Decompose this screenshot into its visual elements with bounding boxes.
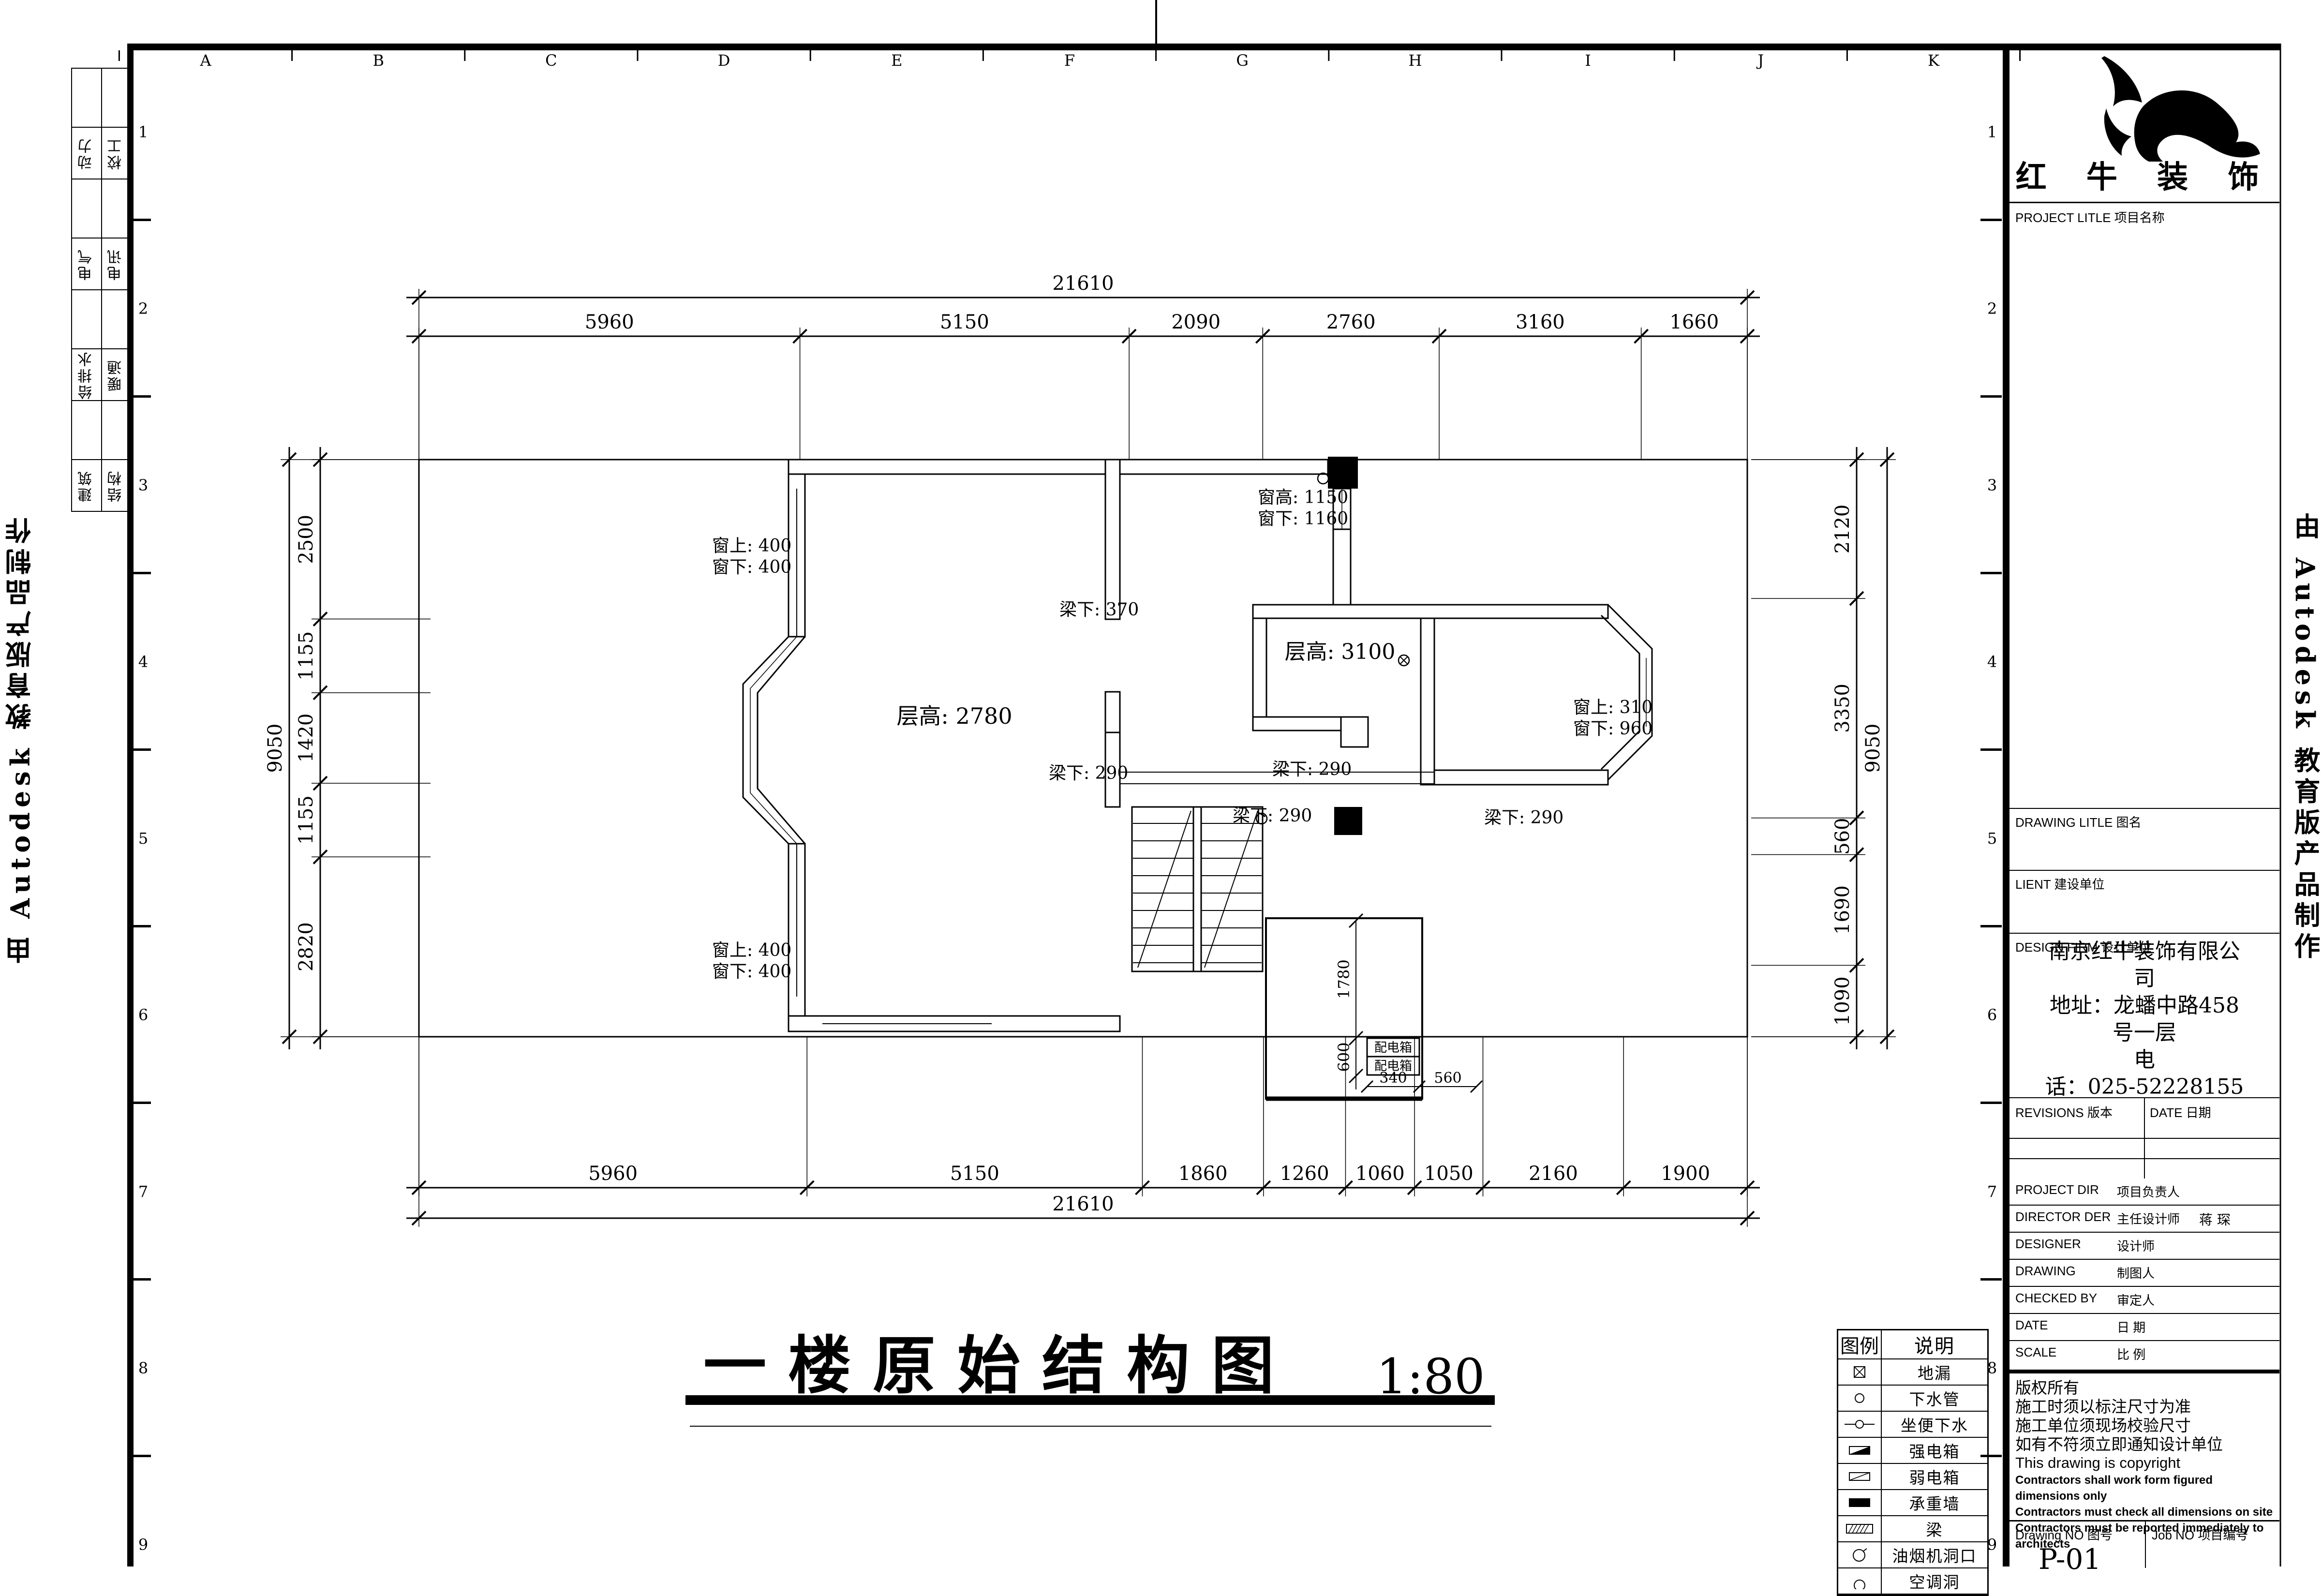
dim-label: 21610 bbox=[1052, 272, 1114, 295]
dim-label: 560 bbox=[1434, 1070, 1461, 1087]
dim-label: 5960 bbox=[585, 311, 634, 333]
legend-label: 坐便下水 bbox=[1882, 1412, 1987, 1437]
drain-pipe-icon bbox=[1843, 1390, 1876, 1406]
grid-number: 2 bbox=[138, 299, 148, 318]
row-value: 蒋 琛 bbox=[2199, 1209, 2231, 1229]
strong-power-box-icon bbox=[1843, 1442, 1876, 1459]
stairs bbox=[1132, 807, 1263, 971]
legend-label: 地漏 bbox=[1882, 1359, 1987, 1385]
plan-label: 梁下: 290 bbox=[1272, 760, 1352, 779]
grid-letter: J bbox=[1756, 51, 1764, 70]
titleblock-border bbox=[2003, 44, 2009, 1566]
toilet-drain-icon bbox=[1843, 1416, 1876, 1432]
dim-label: 3160 bbox=[1516, 311, 1565, 333]
dim-label: 5150 bbox=[950, 1163, 999, 1185]
autodesk-edu-watermark-right: 由 Autodesk 教育版产品制作 bbox=[2286, 513, 2322, 964]
margin-discipline-table: 动力校工 电气电讯 给排水暖通 建筑结构 bbox=[71, 68, 131, 512]
autodesk-edu-watermark-left: 由 Autodesk 教育版产品制作 bbox=[1, 513, 39, 964]
revisions-label: REVISIONS 版本 bbox=[2009, 1099, 2144, 1121]
grid-letter: F bbox=[1064, 51, 1075, 70]
dim-label: 1860 bbox=[1178, 1163, 1228, 1185]
firm-line: 话：025-52228155 bbox=[2009, 1074, 2279, 1101]
wall-stub bbox=[1341, 717, 1368, 747]
dim-label: 9050 bbox=[1862, 724, 1884, 773]
firm-line: 司 bbox=[2009, 965, 2279, 992]
plan-label: 梁下: 290 bbox=[1484, 808, 1563, 828]
drawing-no: P-01 bbox=[2039, 1543, 2101, 1576]
plan-label: 配电箱 bbox=[1374, 1041, 1412, 1055]
dim-label: 340 bbox=[1379, 1070, 1407, 1087]
drawing-title-label: DRAWING LITLE 图名 bbox=[2009, 809, 2142, 831]
legend-header-symbol: 图例 bbox=[1838, 1330, 1882, 1358]
dim-label: 1060 bbox=[1355, 1163, 1405, 1185]
legend-label: 弱电箱 bbox=[1882, 1464, 1987, 1489]
hood-opening-icon bbox=[1843, 1547, 1876, 1563]
grid-number: 9 bbox=[138, 1536, 148, 1554]
wall bbox=[1333, 529, 1351, 606]
row-label-en: PROJECT DIR bbox=[2009, 1182, 2117, 1197]
dim-label: 1420 bbox=[295, 714, 317, 763]
legend-label: 梁 bbox=[1882, 1516, 1987, 1541]
floor-drain-icon bbox=[1843, 1364, 1876, 1380]
red-bull-logo bbox=[2009, 50, 2279, 162]
revisions-date-label: DATE 日期 bbox=[2144, 1099, 2211, 1121]
grid-number: 7 bbox=[1987, 1182, 1997, 1201]
row-label-en: DATE bbox=[2009, 1318, 2117, 1333]
legend-label: 下水管 bbox=[1882, 1386, 1987, 1411]
legend-header-desc: 说明 bbox=[1882, 1330, 1987, 1358]
wall bbox=[1434, 770, 1608, 785]
row-label-cn: 审定人 bbox=[2117, 1291, 2199, 1309]
grid-letter: G bbox=[1236, 51, 1249, 70]
legend-label: 空调洞 bbox=[1882, 1568, 1987, 1594]
discipline-label: 电讯 bbox=[105, 248, 127, 281]
grid-letter: A bbox=[199, 51, 211, 70]
grid-letter: B bbox=[372, 51, 384, 70]
row-label-en: DESIGNER bbox=[2009, 1237, 2117, 1252]
dim-label: 2120 bbox=[1831, 505, 1854, 554]
job-no-label: Job NO 项目编号 bbox=[2152, 1528, 2248, 1542]
note-line: 施工单位须现场校验尺寸 bbox=[2015, 1416, 2279, 1435]
discipline-label: 电气 bbox=[76, 248, 97, 281]
wall bbox=[1253, 605, 1608, 618]
grid-letter: H bbox=[1408, 51, 1422, 70]
title-block: 红 牛 装 饰 PROJECT LITLE 项目名称 DRAWING LITLE… bbox=[2009, 50, 2279, 1566]
row-label-cn: 主任设计师 bbox=[2117, 1209, 2199, 1227]
grid-number: 5 bbox=[1987, 829, 1997, 848]
grid-number: 1 bbox=[1987, 123, 1997, 141]
wall bbox=[1120, 460, 1328, 474]
wall bbox=[789, 460, 1120, 474]
grid-letter: I bbox=[1585, 51, 1591, 70]
grid-number: 8 bbox=[138, 1359, 148, 1377]
row-label-en: DRAWING bbox=[2009, 1264, 2117, 1279]
discipline-label: 给排水 bbox=[76, 350, 97, 400]
dim-label: 3350 bbox=[1831, 684, 1854, 733]
plan-label: 层高: 2780 bbox=[896, 703, 1012, 729]
column bbox=[1328, 457, 1358, 489]
row-label-en: DIRECTOR DER bbox=[2009, 1209, 2117, 1224]
dim-label: 1780 bbox=[1335, 959, 1353, 999]
design-firm-info: 南京红牛装饰有限公 司 地址：龙蟠中路458 号一层 电 话：025-52228… bbox=[2009, 938, 2279, 1101]
firm-line: 南京红牛装饰有限公 bbox=[2009, 938, 2279, 965]
project-title-label: PROJECT LITLE 项目名称 bbox=[2009, 204, 2165, 226]
dim-label: 1155 bbox=[295, 795, 317, 845]
wall bbox=[1105, 460, 1120, 619]
dim-label: 2500 bbox=[295, 515, 317, 564]
grid-number: 1 bbox=[138, 123, 148, 141]
legend-label: 强电箱 bbox=[1882, 1438, 1987, 1463]
legend-table: 图例 说明 地漏 下水管 坐便下水 强电箱 弱电箱 承重墙 梁 油烟机洞口 空调… bbox=[1837, 1329, 1989, 1596]
stair-break bbox=[1205, 811, 1258, 968]
stairs-divider bbox=[1193, 807, 1201, 971]
plan-label: 窗下: 960 bbox=[1573, 719, 1652, 739]
grid-number: 3 bbox=[1987, 476, 1997, 494]
grid-number: 6 bbox=[138, 1006, 148, 1024]
row-label-en: SCALE bbox=[2009, 1345, 2117, 1360]
dim-label: 5150 bbox=[940, 311, 989, 333]
page-title: 一楼原始结构图 bbox=[703, 1328, 1296, 1402]
row-label-cn: 比 例 bbox=[2117, 1345, 2199, 1363]
weak-power-box-icon bbox=[1843, 1468, 1876, 1485]
grid-letter: E bbox=[891, 51, 902, 70]
note-line: Contractors must check all dimensions on… bbox=[2015, 1504, 2279, 1520]
note-line: 版权所有 bbox=[2015, 1378, 2279, 1397]
dim-label: 1155 bbox=[295, 631, 317, 681]
dim-label: 2160 bbox=[1529, 1163, 1578, 1185]
grid-number: 3 bbox=[138, 476, 148, 494]
row-label-cn: 日 期 bbox=[2117, 1318, 2199, 1336]
plan-label: 梁下: 290 bbox=[1233, 806, 1312, 826]
dim-label: 1690 bbox=[1831, 885, 1854, 935]
plan-label: 梁下: 370 bbox=[1059, 600, 1139, 620]
dim-label: 1660 bbox=[1669, 311, 1719, 333]
plan-label: 窗上: 400 bbox=[712, 940, 791, 960]
legend-label: 油烟机洞口 bbox=[1882, 1542, 1987, 1567]
dim-label: 1900 bbox=[1661, 1163, 1710, 1185]
plan-label: 窗上: 400 bbox=[712, 536, 791, 556]
grid-number: 4 bbox=[138, 653, 148, 671]
grid-number: 7 bbox=[138, 1182, 148, 1201]
grid-number: 2 bbox=[1987, 299, 1997, 318]
drawing-sheet: 一楼原始结构图 1:80 216105960515020902760316016… bbox=[0, 0, 2322, 1566]
floor-drain-symbol bbox=[1399, 655, 1409, 666]
bay-window bbox=[743, 637, 789, 844]
bearing-wall-icon bbox=[1843, 1494, 1876, 1511]
row-label-cn: 项目负责人 bbox=[2117, 1182, 2199, 1200]
drawing-no-label: Drawing NO 图号 bbox=[2015, 1528, 2113, 1542]
wall bbox=[1105, 692, 1120, 732]
note-line: 如有不符须立即通知设计单位 bbox=[2015, 1435, 2279, 1454]
plan-label: 层高: 3100 bbox=[1285, 640, 1396, 664]
plot-outline bbox=[419, 460, 1747, 1037]
plan-label: 窗下: 1160 bbox=[1258, 509, 1348, 529]
row-label-cn: 制图人 bbox=[2117, 1264, 2199, 1282]
row-label-cn: 设计师 bbox=[2117, 1237, 2199, 1254]
plan-label: 窗上: 310 bbox=[1573, 698, 1652, 717]
plan-label: 窗下: 400 bbox=[712, 962, 791, 982]
company-logo-box: 红 牛 装 饰 bbox=[2009, 50, 2279, 203]
grid-letter: C bbox=[545, 51, 557, 70]
discipline-label: 结构 bbox=[105, 469, 127, 502]
dim-label: 2090 bbox=[1171, 311, 1221, 333]
client-label: LIENT 建设单位 bbox=[2009, 871, 2104, 893]
grid-letter: K bbox=[1928, 51, 1940, 70]
firm-line: 地址：龙蟠中路458 bbox=[2009, 992, 2279, 1019]
column bbox=[1334, 807, 1362, 835]
dim-label: 1260 bbox=[1280, 1163, 1329, 1185]
plan-label: 窗高: 1150 bbox=[1258, 488, 1348, 507]
dim-label: 21610 bbox=[1052, 1193, 1114, 1215]
plan-label: 梁下: 290 bbox=[1049, 763, 1128, 783]
legend-label: 承重墙 bbox=[1882, 1490, 1987, 1515]
firm-line: 电 bbox=[2009, 1046, 2279, 1074]
wall bbox=[1421, 618, 1434, 785]
dim-label: 1090 bbox=[1831, 976, 1854, 1026]
page-title-scale: 1:80 bbox=[1376, 1348, 1485, 1405]
dim-label: 560 bbox=[1831, 818, 1854, 854]
wall bbox=[1253, 618, 1266, 731]
row-label-en: CHECKED BY bbox=[2009, 1291, 2117, 1306]
note-line: This drawing is copyright bbox=[2015, 1454, 2279, 1472]
ac-hole-icon bbox=[1843, 1573, 1876, 1589]
dim-label: 600 bbox=[1335, 1042, 1353, 1072]
plan-label: 窗下: 400 bbox=[712, 557, 791, 577]
bay-window bbox=[1601, 615, 1639, 769]
discipline-label: 暖通 bbox=[105, 358, 127, 391]
grid-number: 5 bbox=[138, 829, 148, 848]
brand-name: 红 牛 装 饰 bbox=[2009, 152, 2279, 197]
firm-line: 号一层 bbox=[2009, 1019, 2279, 1046]
bay-window bbox=[1608, 605, 1652, 780]
dim-label: 5960 bbox=[588, 1163, 638, 1185]
top-border bbox=[127, 44, 2280, 50]
note-line: Contractors shall work form figured dime… bbox=[2015, 1472, 2279, 1504]
grid-letter: D bbox=[718, 51, 730, 70]
bay-window bbox=[758, 637, 805, 844]
grid-number: 6 bbox=[1987, 1006, 1997, 1024]
discipline-label: 校工 bbox=[105, 137, 127, 170]
grid-number: 4 bbox=[1987, 653, 1997, 671]
beam-icon bbox=[1843, 1521, 1876, 1537]
dim-label: 2820 bbox=[295, 922, 317, 971]
discipline-label: 动力 bbox=[76, 137, 97, 170]
note-line: 施工时须以标注尺寸为准 bbox=[2015, 1397, 2279, 1416]
discipline-label: 建筑 bbox=[76, 469, 97, 502]
stair-break bbox=[1138, 811, 1191, 968]
dim-label: 1050 bbox=[1424, 1163, 1474, 1185]
dim-label: 2760 bbox=[1326, 311, 1376, 333]
dim-label: 9050 bbox=[264, 724, 286, 773]
